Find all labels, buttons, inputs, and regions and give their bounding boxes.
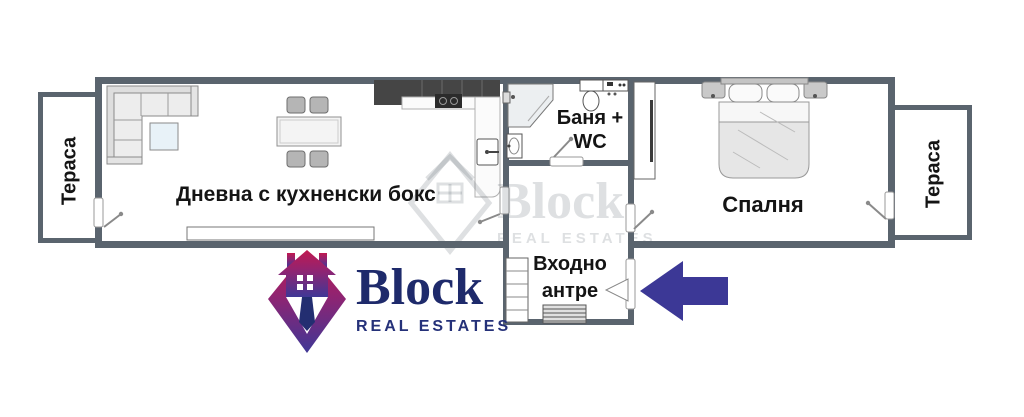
logo-house-icon (268, 250, 346, 353)
kitchen-sink-icon (477, 139, 499, 165)
bathroom-label-line1: Баня + (550, 106, 630, 130)
dining-table-icon (277, 117, 341, 146)
logo-brand-name: Block (356, 262, 511, 314)
entry-label-line2: антре (520, 278, 620, 305)
stove-icon (435, 94, 462, 108)
floor-plan-drawing (0, 0, 1024, 417)
entry-label-line1: Входно (520, 251, 620, 278)
wardrobe-icon (634, 82, 655, 179)
bedroom-label: Спалня (713, 192, 813, 218)
logo-tagline: REAL ESTATES (356, 318, 511, 336)
bathroom-label: Баня + WC (550, 106, 630, 154)
entrance-arrow-icon (640, 261, 728, 321)
bathroom-label-line2: WC (550, 130, 630, 154)
entry-hall-label: Входно антре (520, 251, 620, 305)
bath-sink-icon (507, 134, 522, 158)
floor-plan: Тераса Дневна с кухненски бокс Баня + WC… (0, 0, 1024, 417)
shoe-rack-icon (543, 305, 586, 323)
living-room-label: Дневна с кухненски бокс (176, 182, 428, 207)
coffee-table-icon (150, 123, 178, 150)
brand-logo: Block REAL ESTATES (356, 262, 511, 336)
terrace-left-label: Тераса (59, 137, 82, 205)
terrace-right-label: Тераса (923, 140, 946, 208)
sideboard-icon (187, 227, 374, 240)
